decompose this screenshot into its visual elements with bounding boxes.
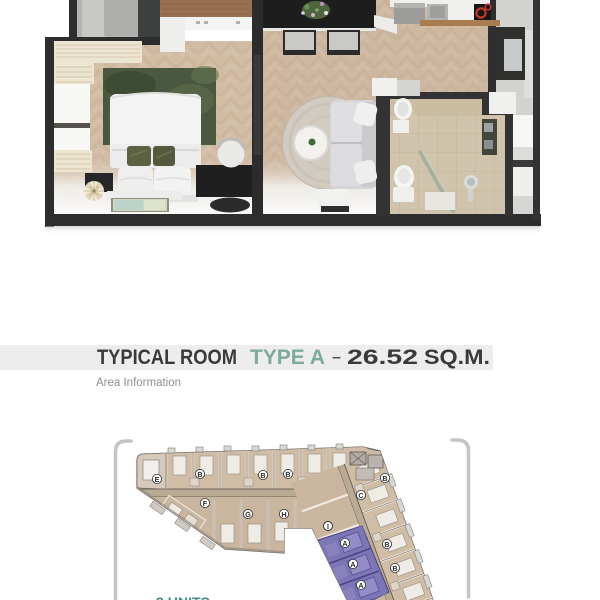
- svg-text:C: C: [358, 491, 363, 500]
- svg-text:TYPE A: TYPE A: [250, 346, 325, 369]
- svg-text:H: H: [281, 510, 286, 519]
- svg-text:B: B: [384, 540, 389, 549]
- svg-text:B: B: [382, 474, 387, 483]
- svg-text:SQ.M.: SQ.M.: [424, 346, 490, 369]
- svg-text:F: F: [203, 499, 208, 508]
- svg-text:G: G: [245, 510, 251, 519]
- svg-text:A: A: [342, 539, 347, 548]
- svg-text:Area Information: Area Information: [96, 377, 181, 389]
- svg-text:26.52: 26.52: [347, 346, 418, 369]
- svg-text:B: B: [197, 470, 202, 479]
- svg-text:B: B: [392, 564, 397, 573]
- svg-text:TYPICAL ROOM: TYPICAL ROOM: [97, 346, 237, 369]
- svg-text:A: A: [358, 581, 363, 590]
- svg-text:3 UNITS: 3 UNITS: [156, 594, 210, 600]
- svg-text:A: A: [350, 560, 355, 569]
- svg-text:B: B: [260, 471, 265, 480]
- svg-text:–: –: [332, 349, 341, 366]
- svg-text:E: E: [155, 475, 160, 484]
- svg-text:I: I: [327, 524, 329, 531]
- svg-text:B: B: [285, 470, 290, 479]
